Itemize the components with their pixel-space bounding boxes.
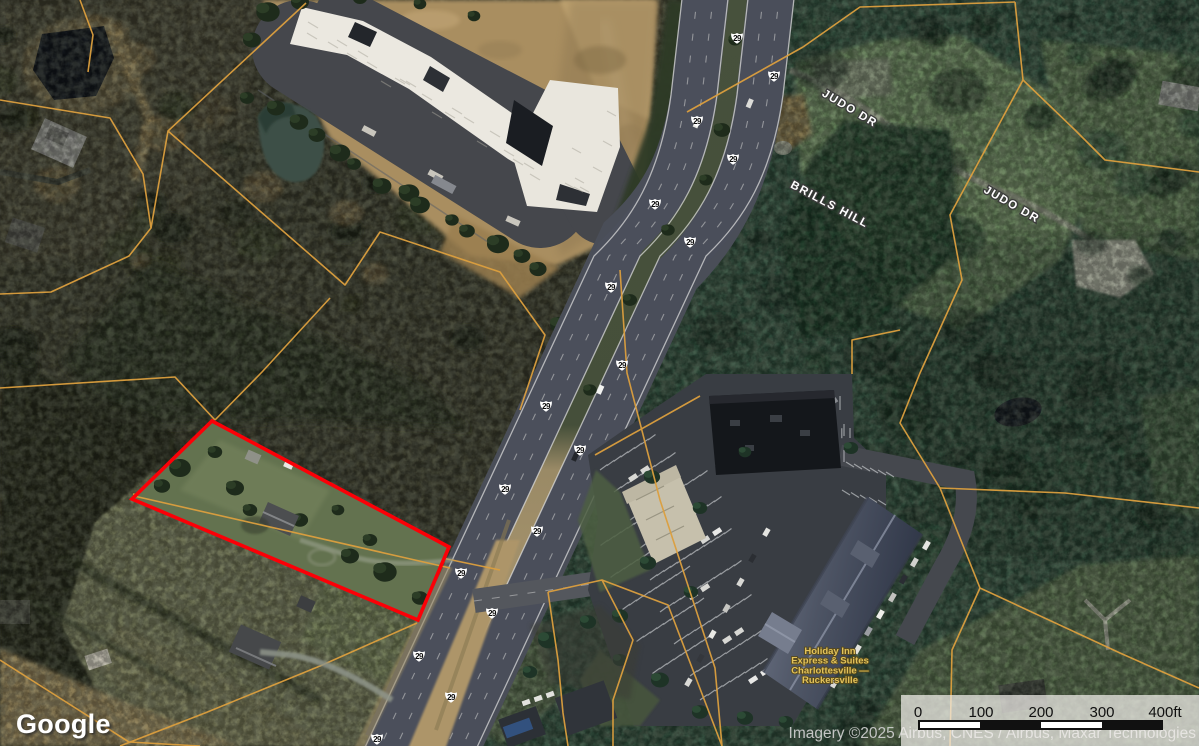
svg-text:Ruckersville: Ruckersville	[802, 675, 858, 686]
svg-text:Google: Google	[16, 709, 111, 739]
svg-text:300: 300	[1089, 704, 1114, 721]
svg-text:0: 0	[914, 704, 922, 721]
svg-text:100: 100	[968, 704, 993, 721]
svg-text:200: 200	[1028, 704, 1053, 721]
svg-text:400ft: 400ft	[1148, 704, 1182, 721]
